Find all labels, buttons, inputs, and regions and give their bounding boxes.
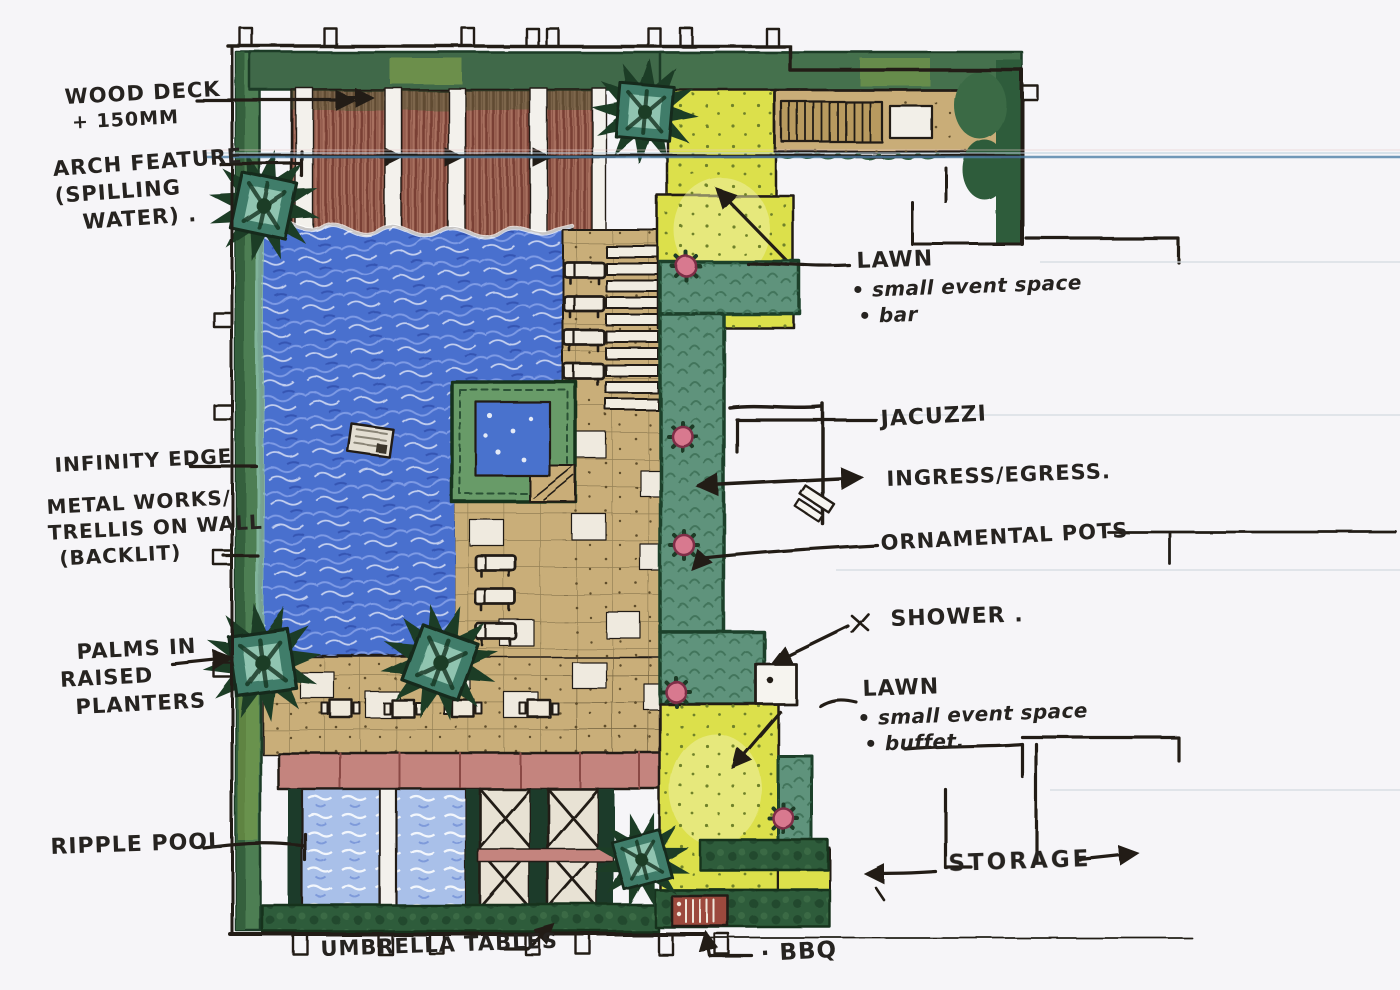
storage-arrow-left-icon: [868, 872, 936, 874]
label-bbq: · BBQ: [760, 936, 838, 970]
jacuzzi-water: [476, 402, 550, 476]
label-palms: PALMS IN RAISED PLANTERS: [58, 632, 207, 721]
label-storage: STORAGE: [948, 845, 1092, 880]
label-wood-deck: WOOD DECK + 150MM: [64, 76, 223, 136]
ripple-pool-water: [396, 789, 466, 908]
bottom-hedge: [262, 905, 658, 931]
lawn-event-space-bottom: [655, 664, 830, 927]
hedge-row: [700, 840, 828, 870]
label-lawn-top: LAWN • small event space • bar: [856, 240, 1083, 328]
label-shower: SHOWER .: [890, 601, 1024, 634]
bar-counter: [890, 106, 932, 138]
bar-slats: [782, 102, 882, 142]
infinity-edge-strip: [256, 222, 264, 654]
entry-door-sketch: [796, 486, 835, 522]
label-text: SHOWER .: [890, 601, 1024, 634]
label-lawn-bottom: LAWN • small event space • buffet.: [862, 668, 1089, 756]
ripple-pool-water: [302, 789, 380, 908]
label-arch-feature: ARCH FEATURE (SPILLING WATER) .: [52, 143, 247, 238]
label-text: RIPPLE POOL: [50, 828, 224, 863]
label-jacuzzi: JACUZZI: [880, 400, 988, 434]
jacuzzi-area: [452, 382, 576, 502]
shower-leader-arrow-icon: [774, 626, 848, 662]
label-text: JACUZZI: [880, 400, 988, 434]
shower-pad: [756, 664, 796, 704]
label-text: STORAGE: [948, 845, 1092, 880]
pool-float-raft: [348, 424, 393, 458]
bbq-unit: [672, 896, 728, 926]
plan-sketch-page: WOOD DECK + 150MM ARCH FEATURE (SPILLING…: [0, 0, 1400, 990]
x-mark-icon: [852, 614, 868, 632]
label-ripple-pool: RIPPLE POOL: [50, 828, 224, 863]
label-metal-works: METAL WORKS/ TRELLIS ON WALL (BACKLIT): [46, 483, 265, 572]
jacuzzi-leader: [737, 420, 876, 452]
label-text: · BBQ: [760, 936, 838, 970]
pergola-beam: [278, 753, 706, 789]
lawn-bottom-leader: [820, 700, 856, 706]
